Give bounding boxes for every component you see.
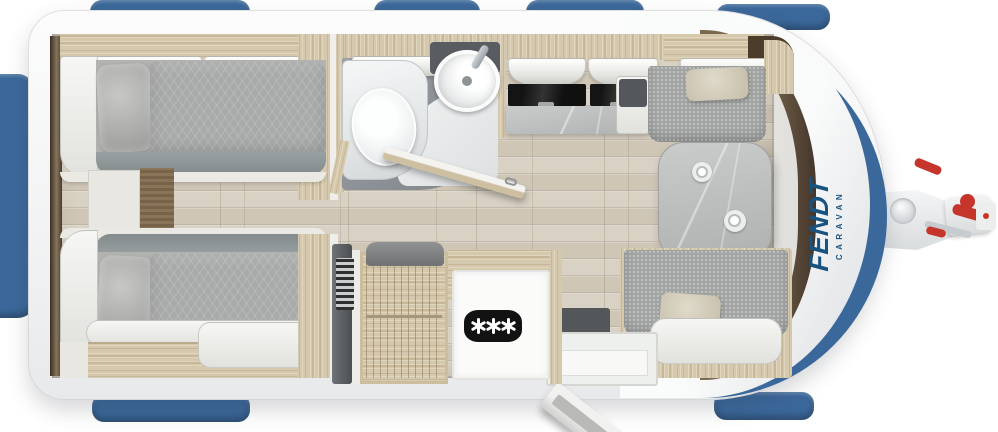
- chest-divider: [60, 342, 88, 378]
- dinette-table: [658, 142, 772, 260]
- wardrobe-flap: [366, 242, 444, 266]
- kitchen-overhead-shelf: [506, 34, 664, 60]
- basin-drain: [462, 76, 472, 86]
- coffee-cup-1: [696, 166, 708, 178]
- duvet-top-bed: [150, 62, 326, 158]
- wardrobe-hanger-rail: [366, 315, 442, 318]
- chest-white-cap: [198, 322, 312, 368]
- bedside-cabinet: [88, 170, 140, 230]
- fendt-logo: FENDT CARAVAN: [806, 158, 852, 292]
- brand-subname: CARAVAN: [835, 158, 844, 292]
- headboard-top-bed: [60, 56, 98, 178]
- wardrobe-wire-rails: [366, 258, 442, 378]
- nightstand-top: [140, 168, 174, 230]
- caravan-floorplan: ✳✳✳ FENDT CARAVAN: [0, 0, 998, 432]
- pillow-top-bed: [96, 63, 155, 154]
- tow-hitch: [868, 150, 998, 290]
- dinette-bench-bottom-front: [650, 318, 782, 364]
- hitch-tip-red-dot: [983, 213, 989, 219]
- wardrobe-with-rails: [360, 252, 448, 384]
- hitch-knob: [890, 198, 916, 224]
- front-corner-shelf: [764, 40, 794, 94]
- freezer-star-icon: [492, 318, 495, 334]
- freezer-star-icon: [477, 318, 480, 334]
- overhead-shelf-top: [60, 34, 300, 58]
- entry-step: [554, 350, 648, 376]
- freezer-rating-label: ✳✳✳: [464, 310, 522, 342]
- fridge-side-panel: [550, 250, 562, 384]
- brand-name: FENDT: [806, 157, 833, 293]
- dinette-side-cabinet-top: [619, 79, 647, 107]
- wire-basket-coil: [336, 258, 354, 310]
- freezer-star-icon: [507, 318, 510, 334]
- hitch-tip: [976, 202, 996, 230]
- coffee-cup-2: [728, 214, 741, 227]
- dinette-pillow-top: [685, 66, 749, 101]
- hitch-red-lever: [913, 157, 942, 176]
- fendt-logo-text: FENDT CARAVAN: [806, 158, 852, 292]
- kitchen-locker-1: [508, 58, 586, 84]
